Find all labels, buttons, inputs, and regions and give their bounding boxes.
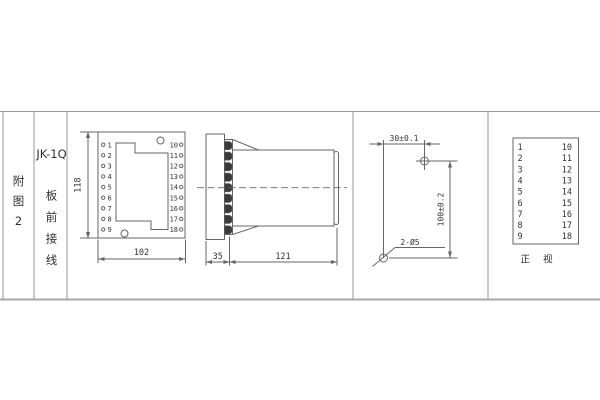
terminal-circle (180, 154, 183, 157)
terminal-circle (180, 143, 183, 146)
dim-121-label: 121 (275, 252, 290, 262)
terminal-bump (225, 215, 233, 223)
terminal-table-right-column: 10 11 12 13 14 15 16 17 18 (562, 143, 572, 242)
terminal-circle (102, 228, 105, 231)
terminal-number: 6 (108, 194, 112, 202)
model-cell: JK-1Q 板 前 接 线 (35, 147, 66, 267)
wiring-char-1: 板 (46, 189, 58, 203)
model-label: JK-1Q (35, 147, 66, 161)
terminal-number: 3 (108, 163, 112, 171)
terminal-circle (102, 217, 105, 220)
arrowhead (230, 260, 236, 264)
terminal-bump (225, 163, 233, 171)
terminal-bump (225, 226, 233, 234)
arrowhead (425, 142, 431, 146)
front-view-inner-step (116, 143, 168, 230)
terminal-number: 15 (170, 194, 178, 202)
terminal-circle (180, 164, 183, 167)
terminal-table-left-column: 1 2 3 4 5 6 7 8 9 (518, 143, 523, 242)
table-caption: 正 视 (520, 254, 557, 266)
table-cell: 16 (562, 210, 572, 220)
table-cell: 13 (562, 177, 572, 187)
terminal-bump (225, 142, 233, 150)
table-cell: 4 (518, 177, 523, 187)
terminal-circle (180, 196, 183, 199)
mounting-hole-bottom (121, 230, 128, 237)
top-chamfer (233, 140, 259, 151)
drawing-canvas: 附 图 2 JK-1Q 板 前 接 线 (0, 0, 600, 400)
arrowhead (331, 260, 337, 264)
table-cell: 1 (518, 143, 523, 153)
mounting-hole-top (157, 137, 164, 144)
wiring-char-3: 接 (46, 232, 58, 246)
dim-100-label: 100±0.2 (437, 192, 446, 226)
side-view (197, 134, 347, 240)
front-left-terminal-numbers: 1 2 3 4 5 6 7 8 9 (108, 141, 112, 234)
terminal-number: 16 (170, 205, 178, 213)
figure-label-char-3: 2 (15, 214, 22, 228)
dim-118-label: 118 (74, 177, 84, 192)
table-cell: 18 (562, 232, 572, 242)
table-cell: 14 (562, 188, 572, 198)
figure-label-char-1: 附 (13, 174, 25, 188)
arrowhead (378, 142, 384, 146)
table-cell: 7 (518, 210, 523, 220)
terminal-number: 10 (170, 141, 178, 149)
terminal-number: 4 (108, 173, 112, 181)
terminal-circle (180, 228, 183, 231)
terminal-number: 12 (170, 163, 178, 171)
arrowhead (224, 260, 230, 264)
side-view-faceplate (206, 134, 225, 240)
table-cell: 2 (518, 154, 523, 164)
sheet-frame (0, 112, 600, 300)
terminal-circle (180, 185, 183, 188)
terminal-number: 1 (108, 141, 112, 149)
terminal-number: 2 (108, 152, 112, 160)
table-cell: 10 (562, 143, 572, 153)
terminal-number: 11 (170, 152, 178, 160)
terminal-table: 1 2 3 4 5 6 7 8 9 10 11 12 13 14 15 16 1… (513, 138, 579, 266)
terminal-number: 5 (108, 184, 112, 192)
wiring-char-2: 前 (46, 210, 58, 224)
wiring-char-4: 线 (46, 253, 58, 267)
terminal-circle (102, 196, 105, 199)
technical-drawing-sheet: 附 图 2 JK-1Q 板 前 接 线 (0, 0, 600, 400)
front-right-terminal-circles (180, 143, 183, 231)
arrowhead (448, 161, 452, 168)
table-cell: 3 (518, 165, 523, 175)
arrowhead (179, 257, 185, 261)
terminal-circle (102, 207, 105, 210)
table-cell: 15 (562, 199, 572, 209)
terminal-circle (102, 164, 105, 167)
front-view: 1 2 3 4 5 6 7 8 9 10 11 12 13 14 15 16 1… (98, 132, 185, 238)
terminal-bump (225, 152, 233, 160)
front-right-terminal-numbers: 10 11 12 13 14 15 16 17 18 (170, 141, 178, 234)
terminal-circle (180, 217, 183, 220)
terminal-circle (180, 207, 183, 210)
bottom-chamfer (233, 226, 259, 235)
table-cell: 12 (562, 165, 572, 175)
terminal-circle (102, 175, 105, 178)
terminal-bump (225, 194, 233, 202)
terminal-number: 17 (170, 216, 178, 224)
front-left-terminal-circles (102, 143, 105, 231)
arrowhead (448, 252, 452, 259)
terminal-number: 7 (108, 205, 112, 213)
terminal-number: 13 (170, 173, 178, 181)
figure-label-cell: 附 图 2 (13, 174, 25, 228)
table-cell: 11 (562, 154, 572, 164)
figure-label-char-2: 图 (13, 194, 25, 208)
dim-102-label: 102 (134, 248, 149, 258)
terminal-circle (102, 143, 105, 146)
terminal-bump (225, 173, 233, 181)
table-cell: 5 (518, 188, 523, 198)
drill-pattern: 30±0.1 100±0.2 2-Ø5 (370, 134, 458, 267)
table-cell: 6 (518, 199, 523, 209)
table-cell: 9 (518, 232, 523, 242)
terminal-circle (102, 185, 105, 188)
terminal-number: 8 (108, 216, 112, 224)
terminal-number: 9 (108, 226, 112, 234)
arrowhead (99, 257, 105, 261)
terminal-circle (180, 175, 183, 178)
dim-30-label: 30±0.1 (390, 134, 419, 143)
table-cell: 8 (518, 221, 523, 231)
arrowhead (206, 260, 212, 264)
dim-35-label: 35 (213, 252, 223, 262)
table-cell: 17 (562, 221, 572, 231)
terminal-bump (225, 205, 233, 213)
terminal-number: 18 (170, 226, 178, 234)
hole-spec-label: 2-Ø5 (400, 237, 419, 247)
terminal-circle (102, 154, 105, 157)
terminal-number: 14 (170, 184, 178, 192)
